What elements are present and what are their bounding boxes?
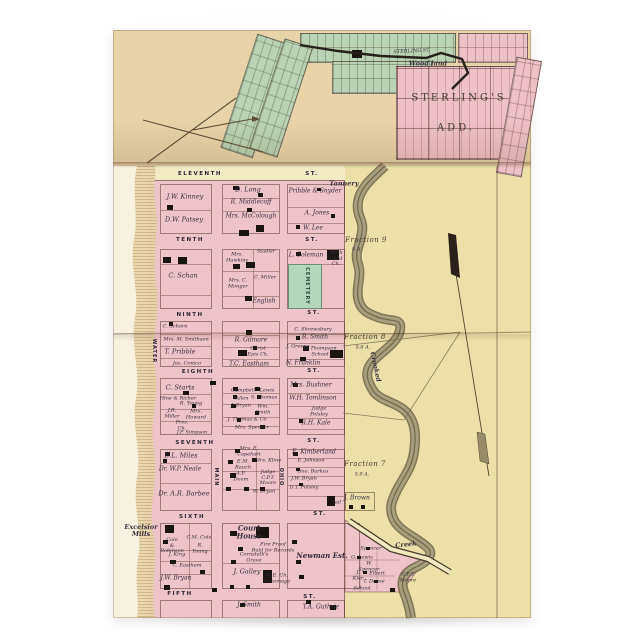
city-block [222, 184, 280, 234]
city-block [287, 449, 345, 511]
jail-block [345, 492, 375, 511]
city-block [160, 249, 212, 309]
courthouse-block [222, 523, 280, 589]
city-block [160, 523, 212, 589]
city-block [287, 321, 345, 367]
card-product-photo: STERLING ST.Wood landSTERLING'SADD.ELEVE… [0, 0, 644, 644]
cemetery-block [288, 264, 322, 309]
city-block [222, 378, 280, 435]
city-block [160, 449, 212, 511]
fold-shading [113, 120, 531, 163]
open-land-area [345, 166, 531, 618]
city-block [160, 184, 212, 234]
city-block [287, 600, 345, 618]
city-block [160, 378, 212, 435]
subdivision-block [300, 33, 456, 63]
city-block [222, 449, 280, 511]
city-block [287, 184, 345, 234]
city-block [222, 249, 280, 309]
city-block [222, 600, 280, 618]
newman-block [287, 523, 360, 589]
city-block [287, 378, 345, 435]
city-block [160, 600, 212, 618]
city-block [160, 321, 212, 367]
fold-shadow [113, 334, 531, 341]
card-crease [113, 162, 531, 168]
city-block [222, 321, 280, 367]
